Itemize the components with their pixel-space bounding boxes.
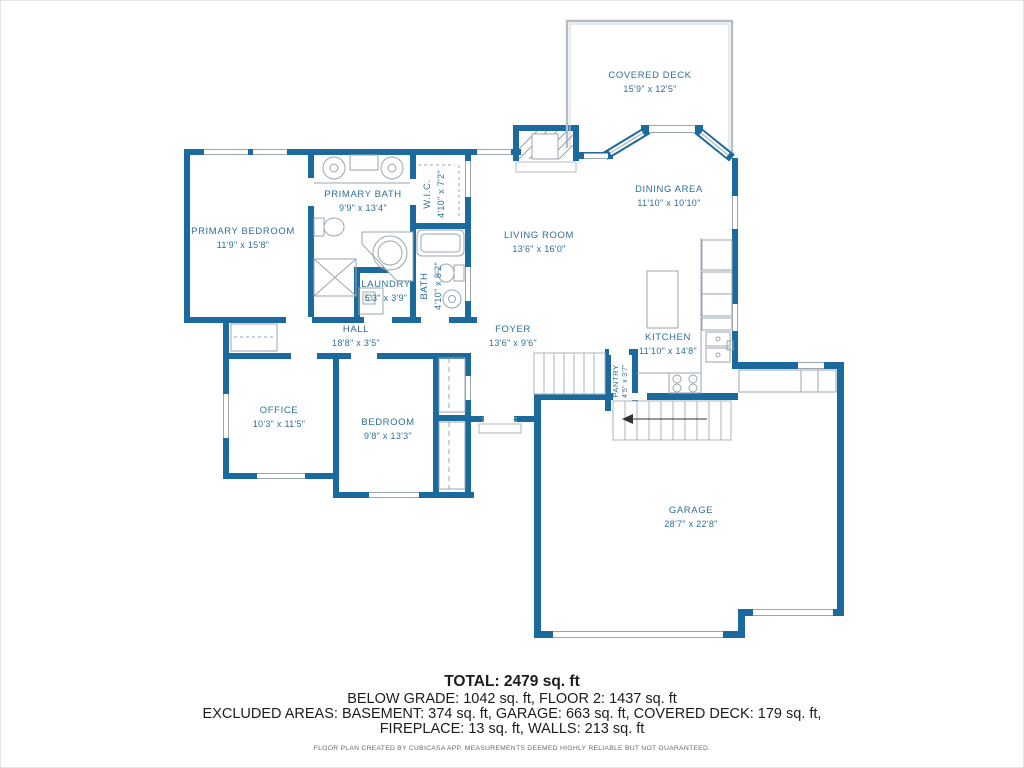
wall — [513, 125, 579, 131]
room-label-pantry: PANTRY 4'5" x 3'7" — [610, 364, 632, 398]
sink-icon — [323, 157, 345, 179]
door-opening — [410, 179, 416, 205]
window — [732, 304, 738, 331]
kitchen-fixtures — [637, 238, 733, 393]
garage-entry-closet — [739, 370, 836, 392]
room-dims: 9'9" x 13'4" — [324, 202, 401, 216]
window — [253, 149, 287, 155]
room-label-office: OFFICE 10'3" x 11'5" — [253, 404, 306, 432]
toilet-icon — [314, 218, 344, 236]
room-name: PRIMARY BATH — [324, 188, 401, 202]
room-name: KITCHEN — [639, 331, 697, 345]
room-dims: 18'8" x 3'5" — [332, 337, 380, 351]
room-dims: 4'10" x 8'2" — [432, 262, 446, 310]
wall — [641, 125, 649, 133]
room-name: FOYER — [489, 323, 537, 337]
room-label-bedroom: BEDROOM 9'8" x 13'3" — [361, 416, 414, 444]
room-dims: 5'3" x 3'9" — [361, 292, 410, 306]
wall — [732, 158, 738, 368]
room-dims: 15'9" x 12'5" — [608, 83, 691, 97]
window — [369, 492, 419, 498]
wall — [410, 223, 471, 229]
kitchen-sink-icon — [706, 332, 733, 362]
room-name: PRIMARY BEDROOM — [191, 225, 295, 239]
room-label-kitchen: KITCHEN 11'10" x 14'8" — [639, 331, 697, 359]
island — [647, 271, 678, 328]
room-dims: 10'3" x 11'5" — [253, 418, 306, 432]
stairs-lower — [613, 401, 731, 440]
room-name: OFFICE — [253, 404, 306, 418]
room-name: BEDROOM — [361, 416, 414, 430]
fridge-icon — [702, 272, 732, 316]
window — [204, 149, 248, 155]
door-opening — [351, 353, 377, 359]
window — [223, 394, 229, 438]
room-label-living-room: LIVING ROOM 13'6" x 16'0" — [504, 229, 574, 257]
wall — [732, 362, 844, 369]
room-name: W.I.C. — [421, 170, 435, 218]
sink-icon — [381, 157, 403, 179]
room-dims: 11'10" x 14'8" — [639, 345, 697, 359]
window — [732, 196, 738, 229]
window — [649, 125, 695, 133]
summary-excluded-2: FIREPLACE: 13 sq. ft, WALLS: 213 sq. ft — [1, 721, 1023, 737]
wall — [354, 267, 416, 273]
wall — [439, 415, 465, 421]
garage-door — [753, 609, 833, 616]
wall — [333, 353, 339, 498]
hall-closet — [231, 324, 277, 351]
wall — [632, 349, 638, 411]
room-label-covered-deck: COVERED DECK 15'9" x 12'5" — [608, 69, 691, 97]
floor-plan: COVERED DECK 15'9" x 12'5" DINING AREA 1… — [0, 0, 1024, 768]
stairs-upper — [534, 353, 605, 394]
window — [465, 267, 471, 301]
room-label-garage: GARAGE 28'7" x 22'8" — [664, 504, 717, 532]
footer-disclaimer: FLOOR PLAN CREATED BY CUBICASA APP. MEAS… — [1, 745, 1023, 752]
wall — [534, 393, 541, 638]
room-dims: 13'6" x 9'6" — [489, 337, 537, 351]
window — [584, 153, 608, 159]
room-name: COVERED DECK — [608, 69, 691, 83]
summary-below-grade: BELOW GRADE: 1042 sq. ft, FLOOR 2: 1437 … — [1, 691, 1023, 707]
wall — [465, 353, 471, 498]
wall — [433, 353, 439, 492]
fixtures-layer — [1, 1, 1024, 768]
primary-bath-fixtures — [314, 155, 413, 296]
wall — [184, 149, 190, 323]
room-dims: 11'10" x 10'10" — [635, 197, 703, 211]
room-label-wic: W.I.C. 4'10" x 7'2" — [421, 170, 449, 218]
room-dims: 28'7" x 22'8" — [664, 518, 717, 532]
stove-icon — [669, 373, 701, 393]
room-name: LAUNDRY — [361, 278, 410, 292]
window — [465, 376, 471, 400]
door-opening — [286, 317, 312, 323]
window — [465, 161, 471, 197]
stairs-direction-arrow — [622, 414, 633, 424]
room-label-primary-bath: PRIMARY BATH 9'9" x 13'4" — [324, 188, 401, 216]
shower-icon — [314, 259, 356, 296]
room-dims: 9'8" x 13'3" — [361, 430, 414, 444]
hearth — [516, 162, 576, 172]
room-label-primary-bedroom: PRIMARY BEDROOM 11'9" x 15'8" — [191, 225, 295, 253]
summary-total: TOTAL: 2479 sq. ft — [1, 673, 1023, 691]
door-opening — [291, 353, 317, 359]
wall — [354, 267, 360, 317]
window — [477, 149, 511, 155]
room-label-bath: BATH 4'10" x 8'2" — [418, 262, 446, 310]
room-label-laundry: LAUNDRY 5'3" x 3'9" — [361, 278, 410, 306]
window — [798, 362, 824, 369]
closet-sliding-doors — [439, 358, 465, 489]
room-dims: 4'5" x 3'7" — [621, 364, 632, 398]
room-name: HALL — [332, 323, 380, 337]
room-dims: 11'9" x 15'8" — [191, 239, 295, 253]
door-opening — [364, 317, 392, 323]
room-name: PANTRY — [610, 364, 621, 398]
tub-icon — [417, 230, 464, 256]
room-label-dining-area: DINING AREA 11'10" x 10'10" — [635, 183, 703, 211]
summary-excluded-1: EXCLUDED AREAS: BASEMENT: 374 sq. ft, GA… — [1, 706, 1023, 722]
garage-door — [553, 631, 723, 638]
door-opening — [421, 317, 449, 323]
room-name: DINING AREA — [635, 183, 703, 197]
room-name: BATH — [418, 262, 432, 310]
room-name: GARAGE — [664, 504, 717, 518]
window — [257, 473, 305, 479]
room-dims: 4'10" x 7'2" — [435, 170, 449, 218]
room-dims: 13'6" x 16'0" — [504, 243, 574, 257]
door-opening — [308, 178, 314, 206]
door-opening — [609, 349, 629, 355]
wall — [837, 362, 844, 616]
wall — [513, 125, 519, 161]
corner-tub-icon — [362, 232, 413, 281]
front-door-opening — [484, 416, 514, 422]
fireplace — [516, 131, 576, 172]
room-label-foyer: FOYER 13'6" x 9'6" — [489, 323, 537, 351]
bay-window — [605, 130, 732, 158]
room-label-hall: HALL 18'8" x 3'5" — [332, 323, 380, 351]
room-name: LIVING ROOM — [504, 229, 574, 243]
wall — [695, 125, 703, 133]
